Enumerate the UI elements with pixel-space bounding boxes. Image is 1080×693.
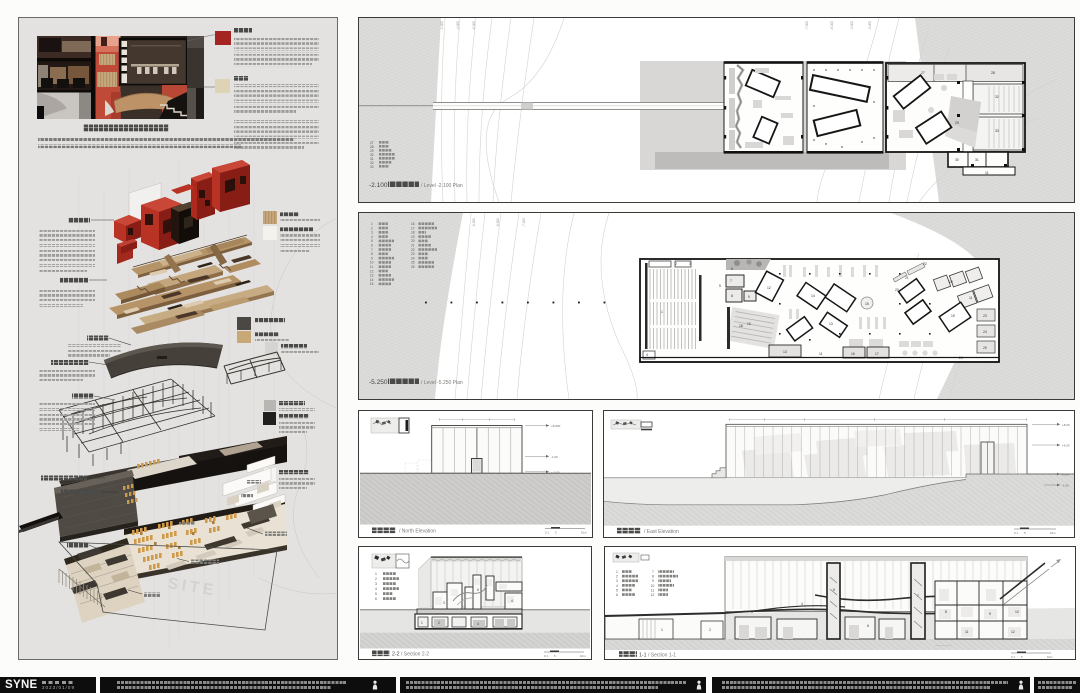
svg-text:2: 2 [438,621,440,625]
svg-text:-7.000: -7.000 [805,21,809,30]
svg-text:______ ____: ______ ____ [934,642,952,646]
svg-text:-1.00: -1.00 [551,455,558,459]
svg-text:7: 7 [917,594,919,598]
svg-text:13: 13 [829,322,833,326]
svg-text:-7.000: -7.000 [522,218,526,227]
svg-text:15: 15 [370,282,374,286]
svg-text:2: 2 [709,628,711,632]
svg-text:13: 13 [783,350,787,354]
svg-text:5: 5 [616,588,618,592]
svg-text:10m: 10m [1047,655,1053,659]
svg-text:11: 11 [965,630,969,634]
svg-text:1-1: 1-1 [639,652,647,658]
svg-text:4: 4 [375,587,377,591]
svg-text:9: 9 [989,612,991,616]
svg-text:/ Level -2.100 Plan: / Level -2.100 Plan [421,183,463,189]
svg-text:24: 24 [983,330,987,334]
svg-text:3: 3 [689,262,691,266]
svg-text:5: 5 [375,592,377,596]
svg-text:10m: 10m [580,654,586,658]
svg-text:6: 6 [731,267,733,271]
svg-text:-6.000: -6.000 [830,21,834,30]
svg-text:+8.00: +8.00 [1062,423,1070,427]
svg-text:/ Section 1-1: / Section 1-1 [648,652,676,658]
svg-text:12: 12 [767,286,771,290]
svg-text:3: 3 [616,579,618,583]
svg-text:9: 9 [748,295,750,299]
svg-text:0 1: 0 1 [1014,531,1018,535]
svg-text:10: 10 [949,280,953,284]
svg-text:2: 2 [375,577,377,581]
svg-text:11: 11 [819,352,823,356]
svg-text:4: 4 [511,599,513,603]
svg-text:15: 15 [865,302,869,306]
svg-text:20: 20 [895,288,899,292]
svg-text:+-0.00: +-0.00 [551,470,560,474]
svg-text:9: 9 [652,579,654,583]
svg-text:6: 6 [616,593,618,597]
svg-text:-1.00: -1.00 [1062,484,1069,488]
svg-text:29: 29 [955,121,959,125]
svg-text:30: 30 [955,158,959,162]
svg-text:1: 1 [616,570,618,574]
svg-text:4: 4 [646,353,648,357]
svg-text:26: 26 [411,265,415,269]
svg-text:3: 3 [375,582,377,586]
svg-text:16: 16 [851,352,855,356]
svg-text:-6.000: -6.000 [472,21,476,30]
svg-text:11: 11 [651,588,655,592]
svg-text:11: 11 [969,296,973,300]
svg-text:10: 10 [1015,610,1019,614]
svg-text:11: 11 [985,171,989,175]
svg-text:SITE: SITE [166,575,218,600]
svg-text:-6.000: -6.000 [496,218,500,227]
svg-text:32: 32 [995,95,999,99]
svg-text:31: 31 [975,158,979,162]
svg-text:14: 14 [811,294,815,298]
svg-text:19: 19 [951,314,955,318]
svg-text:10m: 10m [581,531,587,535]
svg-text:/ Level -5.250 Plan: / Level -5.250 Plan [421,380,463,386]
svg-text:2: 2 [616,575,618,579]
svg-text:10m: 10m [1050,531,1056,535]
svg-text:5: 5 [477,588,479,592]
svg-text:7: 7 [652,570,654,574]
svg-text:3: 3 [751,610,753,614]
svg-text:6: 6 [867,624,869,628]
svg-text:12: 12 [651,593,655,597]
svg-text:5: 5 [833,588,835,592]
svg-text:-5.250: -5.250 [369,379,388,386]
svg-text:-1.000: -1.000 [440,21,444,30]
svg-text:0 1: 0 1 [545,531,549,535]
svg-text:-6.000: -6.000 [472,218,476,227]
svg-text:21: 21 [905,276,909,280]
svg-text:+4.00: +4.00 [1062,444,1070,448]
svg-text:18: 18 [739,324,743,328]
svg-text:26: 26 [959,356,963,360]
svg-text:22: 22 [923,262,927,266]
svg-text:8: 8 [731,294,733,298]
svg-text:4: 4 [477,622,479,626]
svg-text:25: 25 [983,346,987,350]
svg-text:12: 12 [1011,630,1015,634]
svg-text:/ Section 2-2: / Section 2-2 [401,652,429,658]
svg-text:6: 6 [375,597,377,601]
svg-text:/ North Elevation: / North Elevation [399,529,436,535]
svg-text:+8.000: +8.000 [551,424,561,428]
svg-text:28: 28 [991,71,995,75]
svg-text:-3.000: -3.000 [868,21,872,30]
svg-text:4: 4 [616,584,618,588]
svg-text:1: 1 [375,572,377,576]
svg-text:33: 33 [370,165,374,169]
svg-text:-4.000: -4.000 [850,21,854,30]
svg-text:23: 23 [983,314,987,318]
svg-text:2-2: 2-2 [392,652,400,658]
svg-text:33: 33 [995,129,999,133]
svg-text:1: 1 [661,628,663,632]
svg-text:3: 3 [443,601,445,605]
svg-text:10: 10 [651,584,655,588]
svg-text:7: 7 [730,279,732,283]
svg-text:5: 5 [719,284,721,288]
svg-text:+-0.0: +-0.0 [1062,473,1069,477]
svg-text:8: 8 [652,575,654,579]
svg-text:/ East Elevation: / East Elevation [644,529,679,535]
svg-text:8: 8 [945,610,947,614]
svg-text:-4.000: -4.000 [456,21,460,30]
svg-text:4: 4 [801,602,803,606]
svg-text:2: 2 [675,262,677,266]
svg-text:0 1: 0 1 [544,654,548,658]
svg-text:1: 1 [421,621,423,625]
svg-text:10: 10 [747,322,751,326]
svg-text:-2.100: -2.100 [369,182,388,189]
svg-text:1: 1 [661,310,663,314]
svg-text:17: 17 [875,352,879,356]
svg-text:27: 27 [921,71,925,75]
svg-text:0 1: 0 1 [1011,655,1015,659]
